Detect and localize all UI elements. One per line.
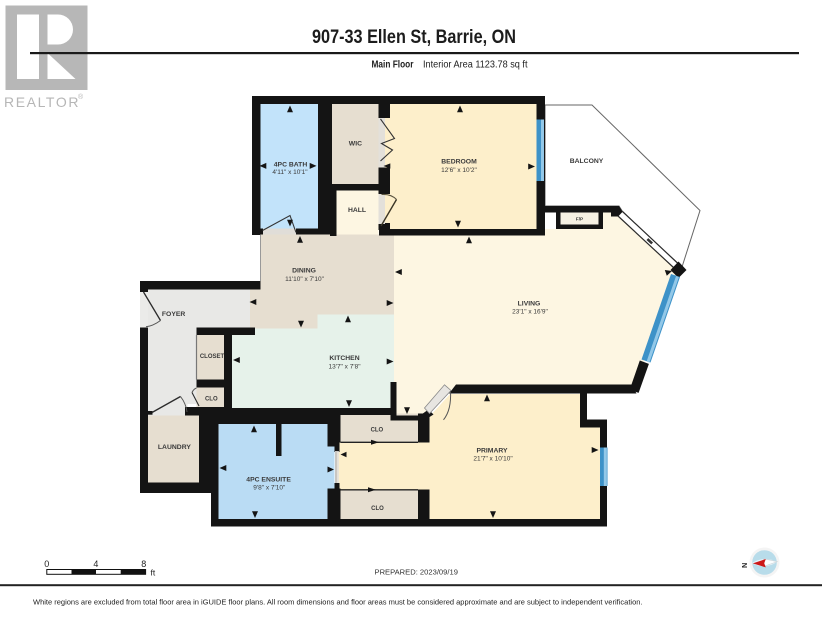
- svg-text:21'7" x 10'10": 21'7" x 10'10": [473, 456, 513, 463]
- svg-text:CLO: CLO: [371, 427, 384, 433]
- svg-text:ft: ft: [151, 568, 156, 578]
- svg-text:REALTOR: REALTOR: [4, 94, 80, 110]
- svg-text:13'7" x 7'8": 13'7" x 7'8": [328, 363, 361, 370]
- svg-text:PRIMARY: PRIMARY: [476, 448, 508, 455]
- svg-text:CLO: CLO: [205, 396, 218, 402]
- svg-text:DINING: DINING: [292, 267, 316, 274]
- svg-text:HALL: HALL: [348, 207, 366, 214]
- svg-text:WIC: WIC: [349, 140, 362, 147]
- svg-text:9'8" x 7'10": 9'8" x 7'10": [253, 485, 286, 492]
- svg-text:®: ®: [78, 93, 84, 101]
- svg-text:11'10" x 7'10": 11'10" x 7'10": [285, 276, 324, 283]
- svg-text:Main Floor: Main Floor: [372, 59, 414, 70]
- svg-text:4'11" x 10'1": 4'11" x 10'1": [272, 169, 308, 176]
- svg-text:907-33 Ellen St, Barrie, ON: 907-33 Ellen St, Barrie, ON: [312, 26, 516, 48]
- svg-text:LAUNDRY: LAUNDRY: [158, 444, 191, 451]
- svg-text:LIVING: LIVING: [518, 301, 541, 308]
- svg-text:Interior Area 1123.78 sq ft: Interior Area 1123.78 sq ft: [423, 59, 528, 70]
- svg-text:23'1" x 16'9": 23'1" x 16'9": [512, 309, 548, 316]
- svg-text:PREPARED: 2023/09/19: PREPARED: 2023/09/19: [375, 567, 458, 576]
- svg-text:0: 0: [44, 559, 49, 569]
- svg-text:BEDROOM: BEDROOM: [441, 158, 477, 165]
- svg-text:N: N: [740, 563, 749, 568]
- svg-text:CLO: CLO: [371, 506, 384, 512]
- svg-text:4PC ENSUITE: 4PC ENSUITE: [246, 477, 291, 484]
- svg-text:BALCONY: BALCONY: [570, 158, 604, 165]
- svg-text:KITCHEN: KITCHEN: [329, 355, 359, 362]
- svg-text:4: 4: [93, 559, 98, 569]
- svg-text:4PC BATH: 4PC BATH: [274, 161, 308, 168]
- svg-text:8: 8: [141, 559, 146, 569]
- svg-text:White regions are excluded fro: White regions are excluded from total fl…: [33, 598, 643, 607]
- svg-text:12'6" x 10'2": 12'6" x 10'2": [441, 167, 477, 174]
- svg-text:FOYER: FOYER: [162, 311, 186, 318]
- svg-text:CLOSET: CLOSET: [200, 354, 225, 360]
- svg-text:F/P: F/P: [576, 216, 584, 222]
